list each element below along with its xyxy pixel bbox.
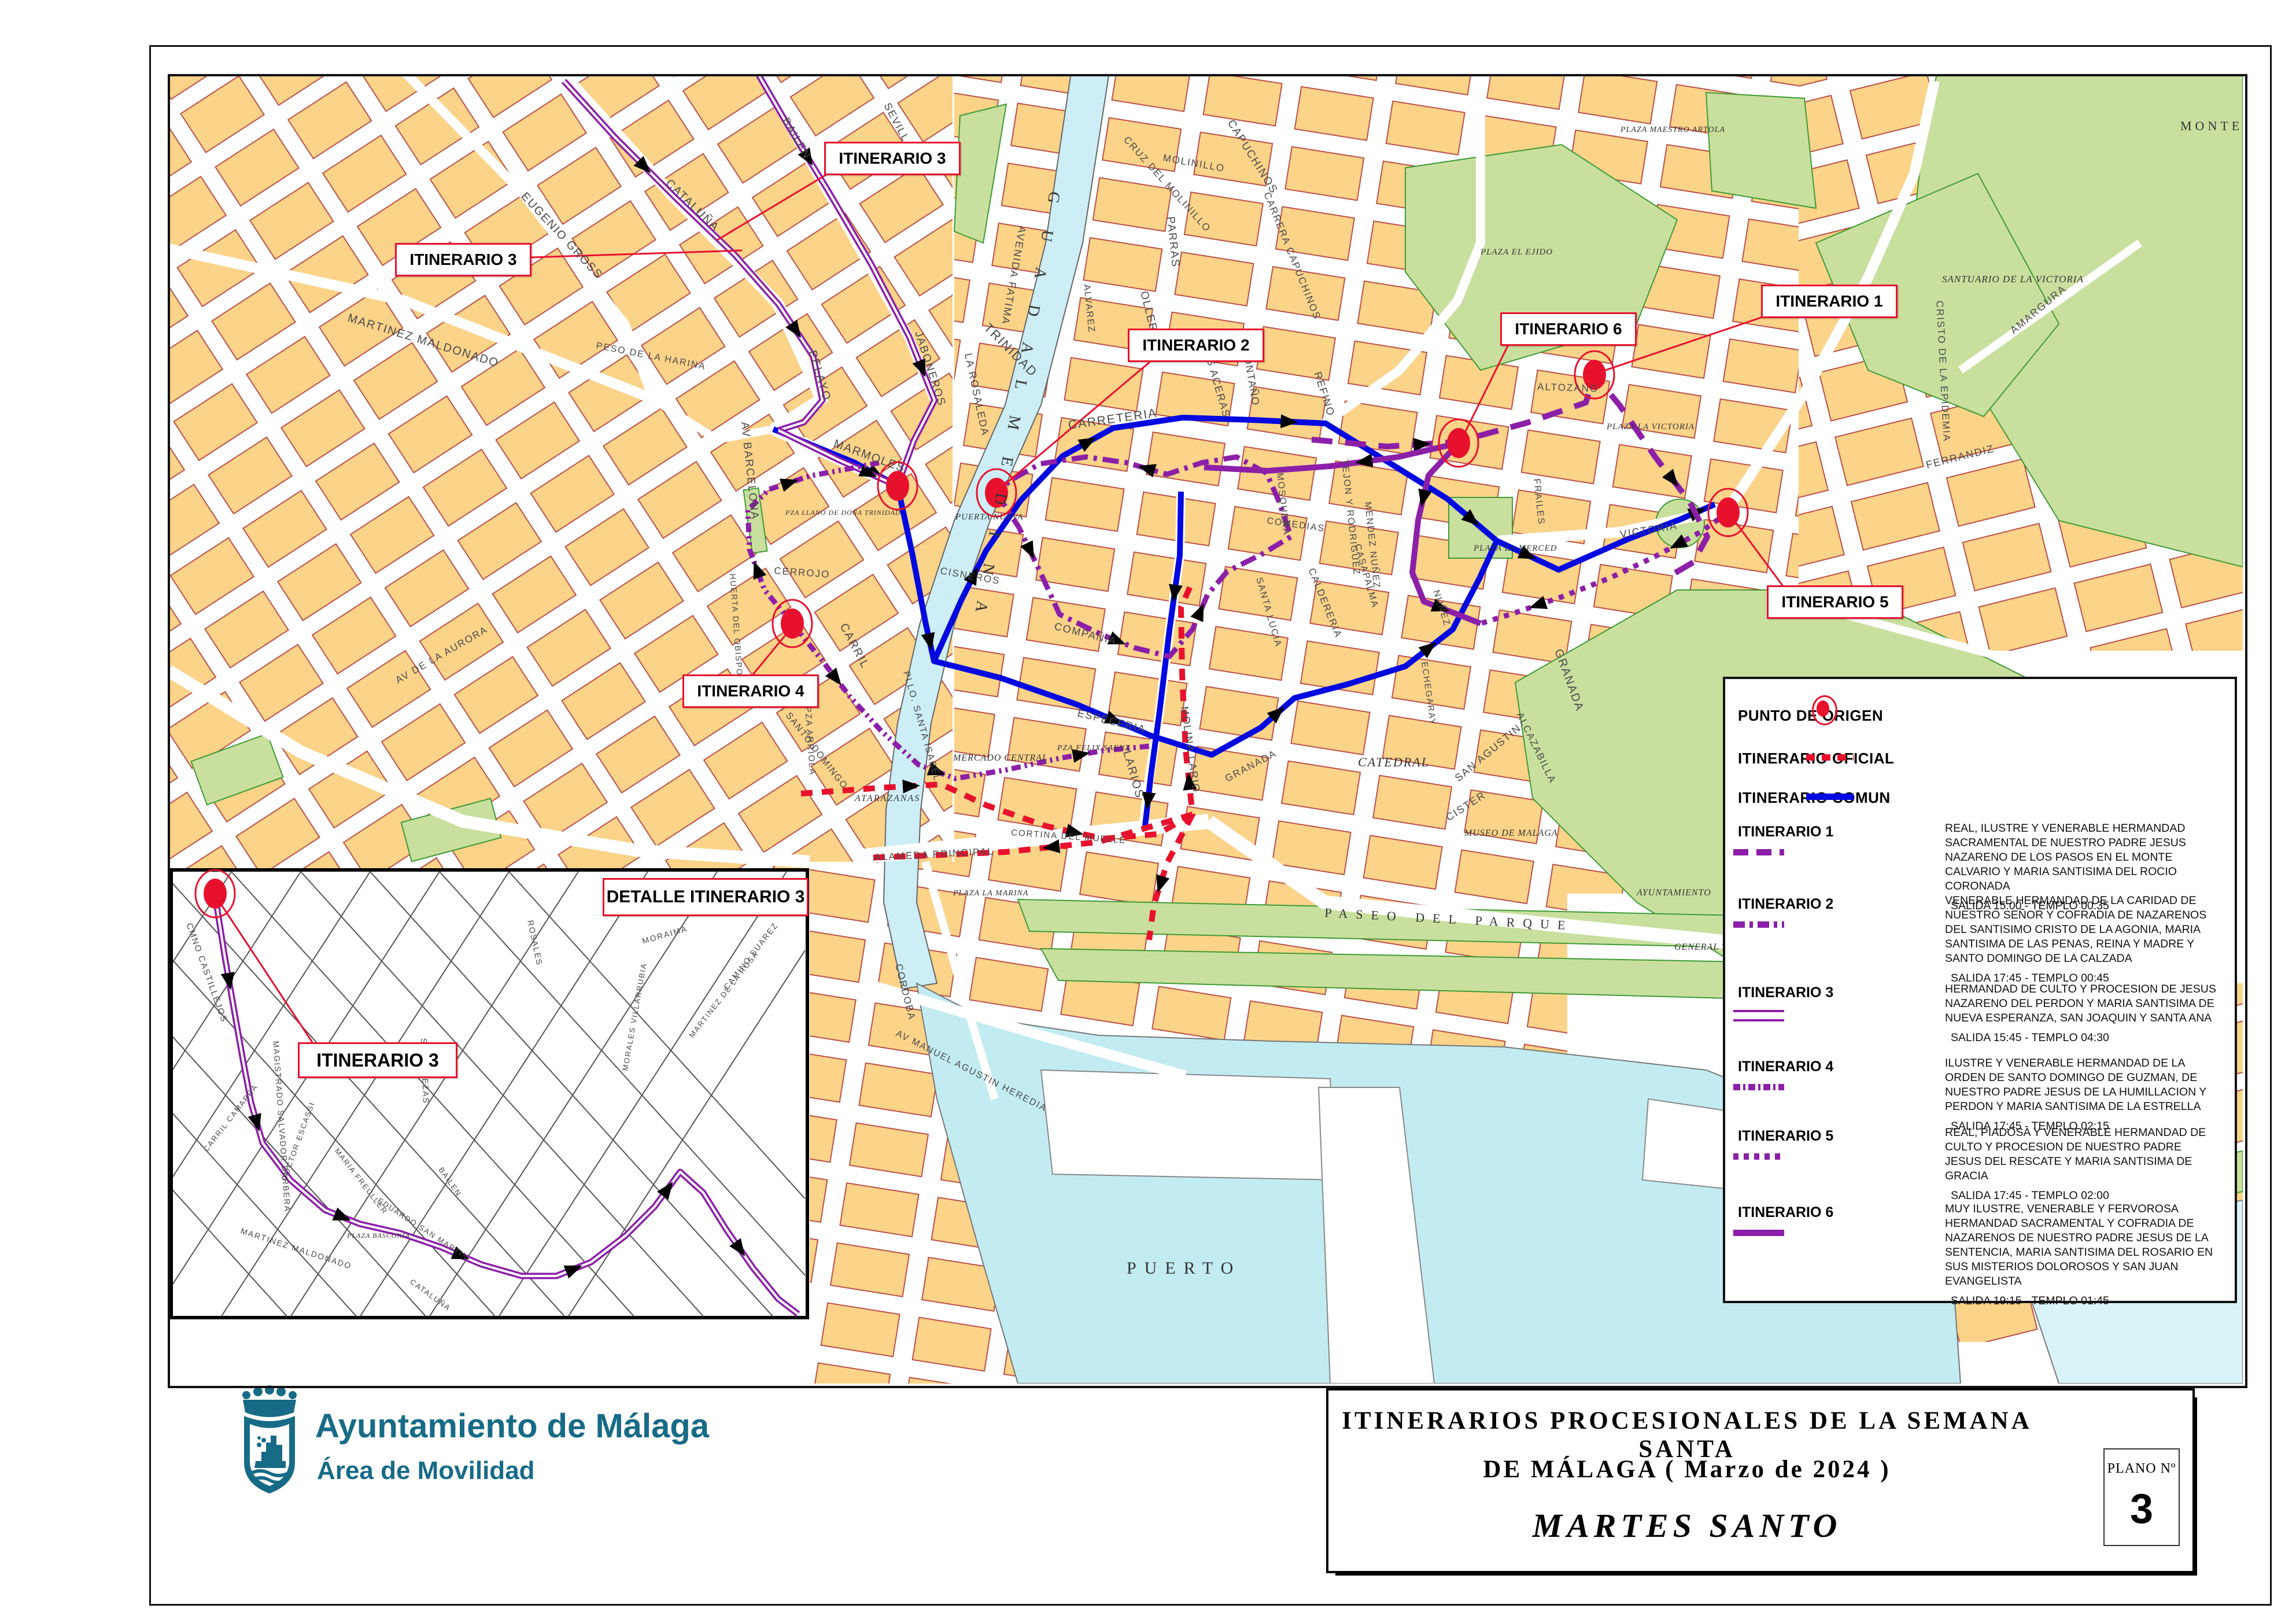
legend-item-label: ITINERARIO 3 xyxy=(1738,984,1833,1001)
itinerary-label-box: ITINERARIO 3 xyxy=(298,1042,457,1078)
district-west-blocks xyxy=(169,72,953,873)
org-name: Ayuntamiento de Málaga xyxy=(315,1407,709,1445)
place-label: PLAZA BASCONIA xyxy=(346,1231,410,1240)
itinerary-label-box: ITINERARIO 5 xyxy=(1767,585,1903,619)
sheet-day-title: MARTES SANTO xyxy=(1328,1506,2046,1545)
itinerary-label-box: ITINERARIO 3 xyxy=(395,243,531,276)
place-label: PUERTO xyxy=(1127,1259,1241,1278)
plan-sheet: MARTINEZ MALDONADOEUGENIO GROSSCATALUÑAP… xyxy=(0,0,2296,1623)
plano-label: PLANO Nº xyxy=(2105,1461,2179,1477)
place-label: MERCADO CENTRAL xyxy=(953,753,1048,763)
legend-item-description: ILUSTRE Y VENERABLE HERMANDAD DE LA ORDE… xyxy=(1945,1056,2218,1134)
origin-point xyxy=(781,608,804,639)
quay-1 xyxy=(1041,1070,1336,1180)
place-label: PLAZA MAESTRO ARTOLA xyxy=(1620,126,1725,134)
itinerary-label-box: ITINERARIO 4 xyxy=(682,674,819,708)
org-dept: Área de Movilidad xyxy=(317,1456,535,1485)
park-ejido-north xyxy=(1706,93,1816,208)
origin-point-icon xyxy=(1812,695,1834,722)
legend-item-line-icon xyxy=(1733,1010,1784,1021)
place-label: PLAZA LA MERCED xyxy=(1473,544,1557,553)
itinerary-label-box: ITINERARIO 3 xyxy=(824,142,961,175)
itinerary-label-box: ITINERARIO 2 xyxy=(1128,329,1264,362)
legend-item-description: MUY ILUSTRE, VENERABLE Y FERVOROSA HERMA… xyxy=(1945,1202,2218,1308)
itinerary-label-box: ITINERARIO 6 xyxy=(1500,312,1637,346)
legend-item-label: ITINERARIO 5 xyxy=(1738,1128,1833,1145)
legend-item-salida: SALIDA 17:45 - TEMPLO 02:00 xyxy=(1945,1189,2218,1203)
itinerary-label-box: ITINERARIO 1 xyxy=(1761,285,1898,318)
legend-item-description: VENERABLE HERMANDAD DE LA CARIDAD DE NUE… xyxy=(1945,894,2218,986)
origin-point xyxy=(886,471,909,501)
place-label: MUSEO DE MALAGA xyxy=(1464,828,1558,838)
origin-point xyxy=(204,879,227,909)
origin-point xyxy=(1447,428,1470,458)
itinerary-label-box: DETALLE ITINERARIO 3 xyxy=(603,878,809,916)
legend-item-label: ITINERARIO 1 xyxy=(1738,824,1833,840)
legend-item-line-icon xyxy=(1733,1084,1784,1090)
legend-item-salida: SALIDA 19:15 - TEMPLO 01:45 xyxy=(1945,1294,2218,1308)
street-label: ALTOZANO xyxy=(1537,381,1599,394)
place-label: SANTUARIO DE LA VICTORIA xyxy=(1942,274,2084,285)
plano-number-box: PLANO Nº 3 xyxy=(2103,1448,2180,1546)
legend-item-label: ITINERARIO 2 xyxy=(1738,896,1833,913)
place-label: PZA LLANO DE DOÑA TRINIDAD xyxy=(785,508,901,517)
legend-item-label: ITINERARIO 6 xyxy=(1738,1204,1833,1221)
legend-item-label: ITINERARIO 4 xyxy=(1738,1058,1833,1075)
plano-number: 3 xyxy=(2105,1485,2179,1533)
ayuntamiento-crest xyxy=(242,1385,297,1493)
legend-item-line-icon xyxy=(1733,921,1784,928)
place-label: PLAZA EL EJIDO xyxy=(1480,248,1553,257)
legend-item-line-icon xyxy=(1733,849,1784,855)
legend-item-salida: SALIDA 15:45 - TEMPLO 04:30 xyxy=(1945,1031,2218,1045)
legend-item-line-icon xyxy=(1733,1230,1784,1236)
comun-line-icon xyxy=(1806,794,1854,800)
legend-item-description: HERMANDAD DE CULTO Y PROCESION DE JESUS … xyxy=(1945,982,2218,1045)
legend-item-line-icon xyxy=(1733,1153,1784,1160)
place-label: PLAZA LA MARINA xyxy=(953,889,1028,898)
legend-item-description: REAL, PIADOSA Y VENERABLE HERMANDAD DE C… xyxy=(1945,1126,2218,1203)
place-label: CATEDRAL xyxy=(1358,755,1430,769)
legend-box: PUNTO DE ORIGEN ITINERARIO OFICIAL ITINE… xyxy=(1723,677,2237,1303)
oficial-line-icon xyxy=(1806,754,1854,761)
place-label: AYUNTAMIENTO xyxy=(1636,888,1711,898)
place-label: ATARAZANAS xyxy=(854,794,920,803)
legend-origin-label: PUNTO DE ORIGEN xyxy=(1738,707,1883,725)
sheet-title-line2: DE MÁLAGA ( Marzo de 2024 ) xyxy=(1328,1455,2046,1484)
place-label: PLAZA LA VICTORIA xyxy=(1606,422,1695,431)
place-label: MONTE CALVARIO xyxy=(2180,119,2296,133)
title-block: ITINERARIOS PROCESIONALES DE LA SEMANA S… xyxy=(1326,1388,2195,1573)
place-label: PZA FELIX SAENZ xyxy=(1057,744,1130,753)
origin-point xyxy=(1717,497,1740,528)
